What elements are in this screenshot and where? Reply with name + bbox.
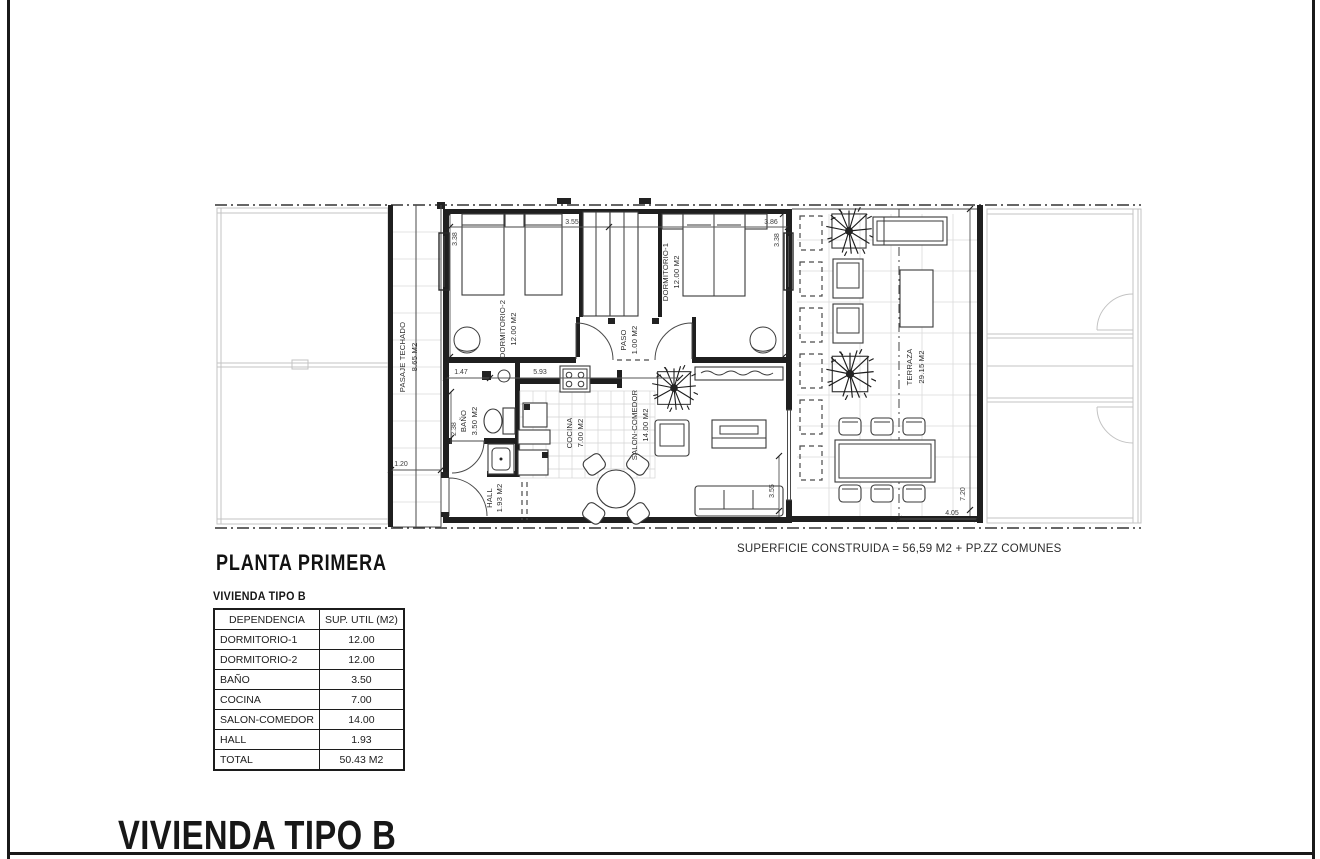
total-label: TOTAL — [214, 750, 319, 771]
table-row: HALL 1.93 — [214, 730, 404, 750]
dormitorio-2-furniture — [454, 214, 562, 353]
dim-dorm2-width: 3.55 — [565, 219, 579, 226]
total-value: 50.43 M2 — [319, 750, 403, 771]
area-table-block: VIVIENDA TIPO B DEPENDENCIA SUP. UTIL (M… — [213, 591, 405, 771]
room-label-paso: PASO — [619, 329, 628, 350]
room-area-paso: 1.00 M2 — [630, 326, 639, 355]
room-label-terraza: TERRAZA — [905, 348, 914, 386]
room-label-hall: HALL — [485, 488, 494, 508]
drawing-sheet: PASAJE TECHADO 8.65 M2 1.20 — [0, 0, 1320, 859]
col-header-dependencia: DEPENDENCIA — [214, 609, 319, 630]
row-value: 7.00 — [319, 690, 403, 710]
room-area-dormitorio2: 12.00 M2 — [509, 312, 518, 345]
room-area-hall: 1.93 M2 — [495, 484, 504, 513]
paso-wardrobes — [583, 212, 638, 316]
row-label: HALL — [214, 730, 319, 750]
table-row: DORMITORIO-1 12.00 — [214, 630, 404, 650]
row-value: 3.50 — [319, 670, 403, 690]
dim-bano-width: 1.47 — [454, 369, 468, 376]
area-table: DEPENDENCIA SUP. UTIL (M2) DORMITORIO-1 … — [213, 608, 405, 771]
row-value: 14.00 — [319, 710, 403, 730]
terraza: TERRAZA 29.15 M2 — [792, 205, 983, 523]
bathroom-fixtures — [482, 370, 515, 474]
area-table-heading: VIVIENDA TIPO B — [213, 591, 391, 603]
table-row: COCINA 7.00 — [214, 690, 404, 710]
room-area-cocina: 7.00 M2 — [576, 419, 585, 448]
row-label: DORMITORIO-1 — [214, 630, 319, 650]
table-header-row: DEPENDENCIA SUP. UTIL (M2) — [214, 609, 404, 630]
dim-dorm2-height: 3.38 — [452, 232, 459, 246]
dim-salon-height: 3.55 — [769, 484, 776, 498]
dim-pasaje-width: 1.20 — [394, 461, 408, 468]
room-area-dormitorio1: 12.00 M2 — [672, 255, 681, 288]
dim-dorm1-width: 3.86 — [764, 219, 778, 226]
left-neighbor-unit — [217, 208, 388, 524]
floor-plan-drawing: PASAJE TECHADO 8.65 M2 1.20 — [0, 0, 1320, 859]
dim-terraza-height: 7.20 — [960, 487, 967, 501]
room-label-dormitorio1: DORMITORIO-1 — [661, 243, 670, 301]
row-label: COCINA — [214, 690, 319, 710]
row-value: 1.93 — [319, 730, 403, 750]
dim-terraza-width: 4.05 — [945, 510, 959, 517]
table-row: SALON-COMEDOR 14.00 — [214, 710, 404, 730]
dim-bano-height: 2.38 — [451, 422, 458, 436]
room-label-cocina: COCINA — [565, 417, 574, 448]
room-area-pasaje: 8.65 M2 — [410, 343, 419, 372]
row-value: 12.00 — [319, 630, 403, 650]
col-header-sup-util: SUP. UTIL (M2) — [319, 609, 403, 630]
room-label-salon: SALON-COMEDOR — [630, 389, 639, 460]
room-label-pasaje: PASAJE TECHADO — [398, 322, 407, 392]
superficie-note: SUPERFICIE CONSTRUIDA = 56,59 M2 + PP.ZZ… — [737, 543, 1061, 555]
table-row: BAÑO 3.50 — [214, 670, 404, 690]
room-area-terraza: 29.15 M2 — [917, 350, 926, 383]
pasaje-techado: PASAJE TECHADO 8.65 M2 1.20 — [388, 205, 444, 527]
plan-title: PLANTA PRIMERA — [216, 550, 387, 576]
dim-dorm1-height: 3.38 — [774, 233, 781, 247]
room-label-bano: BAÑO — [459, 410, 468, 432]
row-label: BAÑO — [214, 670, 319, 690]
row-label: SALON-COMEDOR — [214, 710, 319, 730]
table-row: DORMITORIO-2 12.00 — [214, 650, 404, 670]
row-label: DORMITORIO-2 — [214, 650, 319, 670]
room-area-salon: 14.00 M2 — [641, 408, 650, 441]
table-total-row: TOTAL 50.43 M2 — [214, 750, 404, 771]
room-area-bano: 3.50 M2 — [470, 407, 479, 436]
row-value: 12.00 — [319, 650, 403, 670]
room-label-dormitorio2: DORMITORIO-2 — [498, 300, 507, 358]
sheet-title: VIVIENDA TIPO B — [118, 812, 396, 859]
dim-cocina-salon-width: 5.93 — [533, 369, 547, 376]
right-neighbor-unit — [987, 209, 1141, 523]
